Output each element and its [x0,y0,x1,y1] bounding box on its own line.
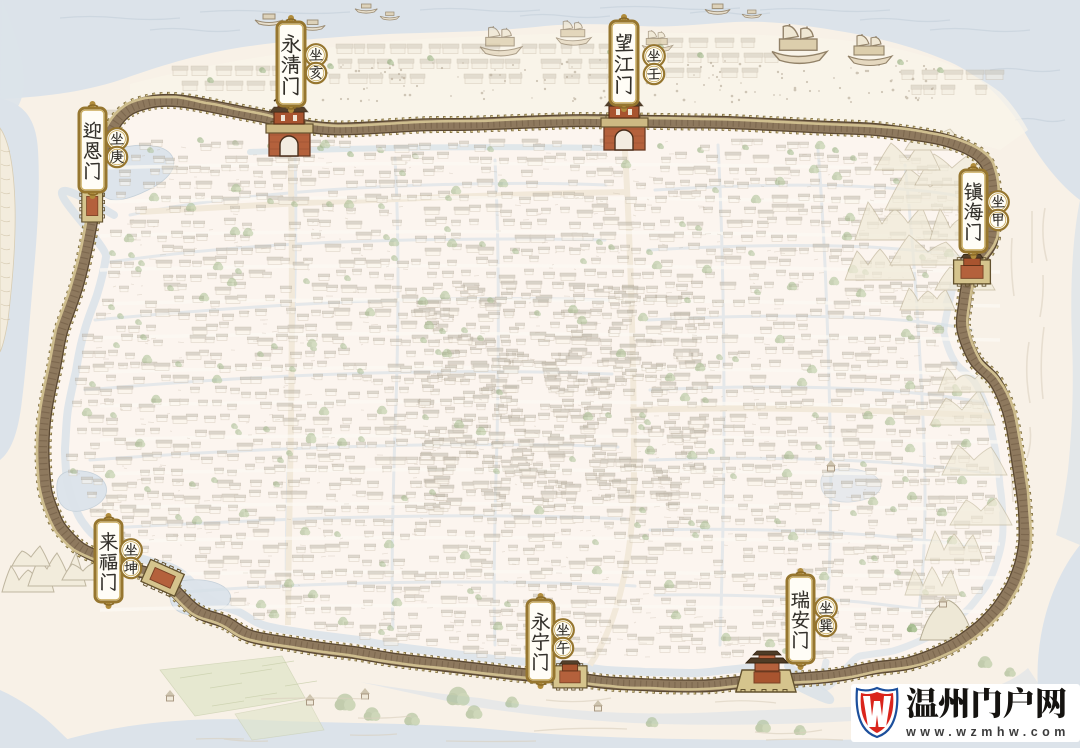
svg-text:www.wzmhw.com: www.wzmhw.com [905,725,1070,739]
